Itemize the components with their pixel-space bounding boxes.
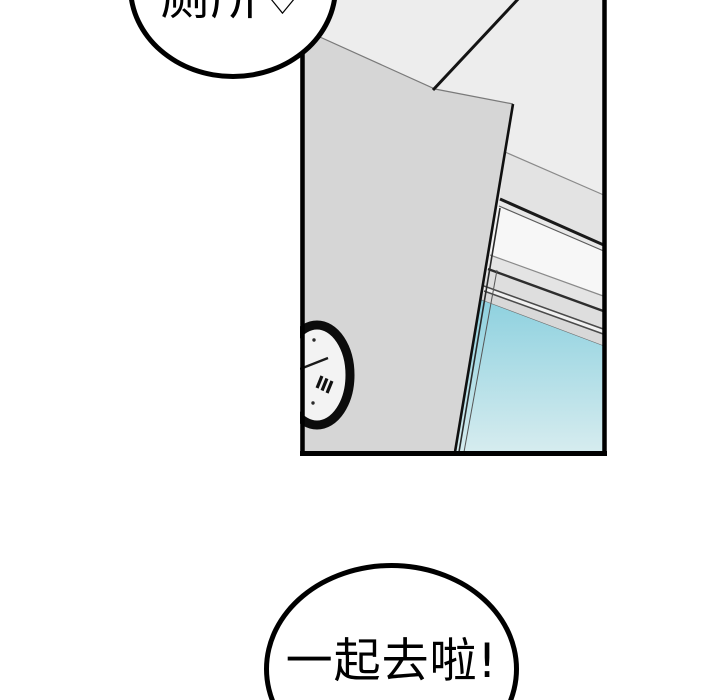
clock-ring: [284, 325, 350, 425]
wall-clock: [284, 325, 350, 425]
comic-page: 厕所♡ 一起去啦!: [0, 0, 720, 700]
speech-bubble-top-text: 厕所♡: [128, 0, 338, 22]
speech-bubble-bottom-text: 一起去啦!: [264, 638, 519, 685]
